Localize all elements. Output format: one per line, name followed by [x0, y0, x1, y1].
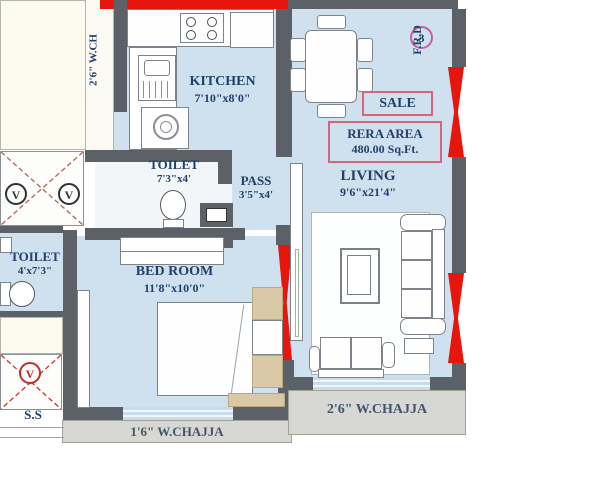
sofa-right-backrest — [432, 229, 445, 319]
kitchen-label: KITCHEN 7'10"x8'0" — [170, 74, 275, 105]
bed — [157, 302, 253, 396]
wc-attached-bowl-icon — [160, 190, 186, 220]
bed-pillow-bottom — [252, 355, 283, 388]
dining-chair-left-1 — [290, 38, 306, 62]
right-wall-mid — [452, 157, 466, 273]
sofa-right-seat-2 — [401, 260, 432, 289]
sofa-bottom-backrest — [318, 369, 384, 378]
living-chajja-band: 2'6" W.CHAJJA — [288, 390, 466, 435]
vent-symbol-2: V — [58, 183, 80, 205]
dining-chair-top — [317, 15, 346, 29]
toilet-attached-label: TOILET 7'3"x4' — [138, 157, 210, 186]
bed-headboard-mid — [252, 320, 283, 355]
dining-chair-right-1 — [357, 38, 373, 62]
service-shaft-label: S.S — [8, 407, 58, 423]
stove-icon — [180, 13, 224, 43]
toilet-common-bottom-wall — [0, 311, 63, 317]
right-wall-top — [452, 9, 466, 67]
sofa-side-table — [404, 338, 434, 354]
vent-symbol-1: V — [5, 183, 27, 205]
sale-badge: SALE — [362, 91, 433, 116]
right-wall-bottom — [452, 363, 466, 390]
toilet-common-top-wall — [0, 226, 63, 233]
bed-foot-dresser — [228, 393, 285, 407]
dining-table — [305, 30, 357, 103]
exterior-line-2 — [0, 437, 64, 438]
floor-plan: 1'6" W.CHAJJA 2'6" W.CHAJJA 2'6" W.CH V … — [0, 0, 614, 483]
living-bottom-wall-left — [288, 377, 313, 390]
top-window-marker — [100, 0, 290, 9]
bed-pillow-top — [252, 287, 283, 320]
dining-chair-left-2 — [290, 68, 306, 92]
wc-common-bowl-icon — [9, 281, 35, 307]
sofa-right-seat-1 — [401, 231, 432, 260]
bedroom-chajja-band: 1'6" W.CHAJJA — [62, 420, 292, 443]
sofa-right-seat-3 — [401, 289, 432, 318]
left-chajja-label: 2'6" W.CH — [88, 3, 104, 118]
fire-door-label: F.R.D — [410, 10, 426, 70]
toilet-common-label: TOILET 4'x7'3" — [2, 249, 68, 278]
bedroom-label: BED ROOM 11'8"x10'0" — [122, 264, 227, 295]
washbasin-block — [200, 203, 233, 227]
top-wall — [288, 0, 458, 9]
bedroom-door-leaf — [77, 290, 90, 408]
sofa-bottom-arm-right — [382, 342, 395, 368]
dining-chair-bottom — [317, 104, 346, 118]
tv-unit — [290, 163, 303, 341]
kitchen-counter-right — [230, 12, 274, 48]
exterior-line-1 — [0, 427, 64, 428]
dining-chair-right-2 — [357, 68, 373, 92]
rera-area-badge: RERA AREA 480.00 Sq.Ft. — [328, 121, 442, 163]
vent-symbol-3: V — [19, 362, 41, 384]
bedroom-window-sill — [123, 407, 233, 420]
coffee-table — [340, 248, 380, 304]
pass-label: PASS 3'5"x4' — [225, 173, 287, 202]
bedroom-bottom-wall-right — [233, 407, 292, 420]
neighbour-room-mid-left — [0, 317, 63, 354]
washing-machine-icon — [141, 107, 189, 149]
living-label: LIVING 9'6"x21'4" — [318, 167, 418, 199]
wardrobe — [120, 237, 224, 265]
kitchen-left-wall — [114, 0, 127, 112]
neighbour-room-top-left — [0, 0, 86, 150]
wc-attached-tank — [163, 219, 184, 228]
sofa-bottom-seat-1 — [320, 337, 351, 369]
bedroom-bottom-wall-left — [63, 407, 123, 420]
sofa-right-arm-bottom — [400, 318, 446, 335]
living-window-sill — [313, 377, 430, 390]
sofa-bottom-seat-2 — [351, 337, 382, 369]
